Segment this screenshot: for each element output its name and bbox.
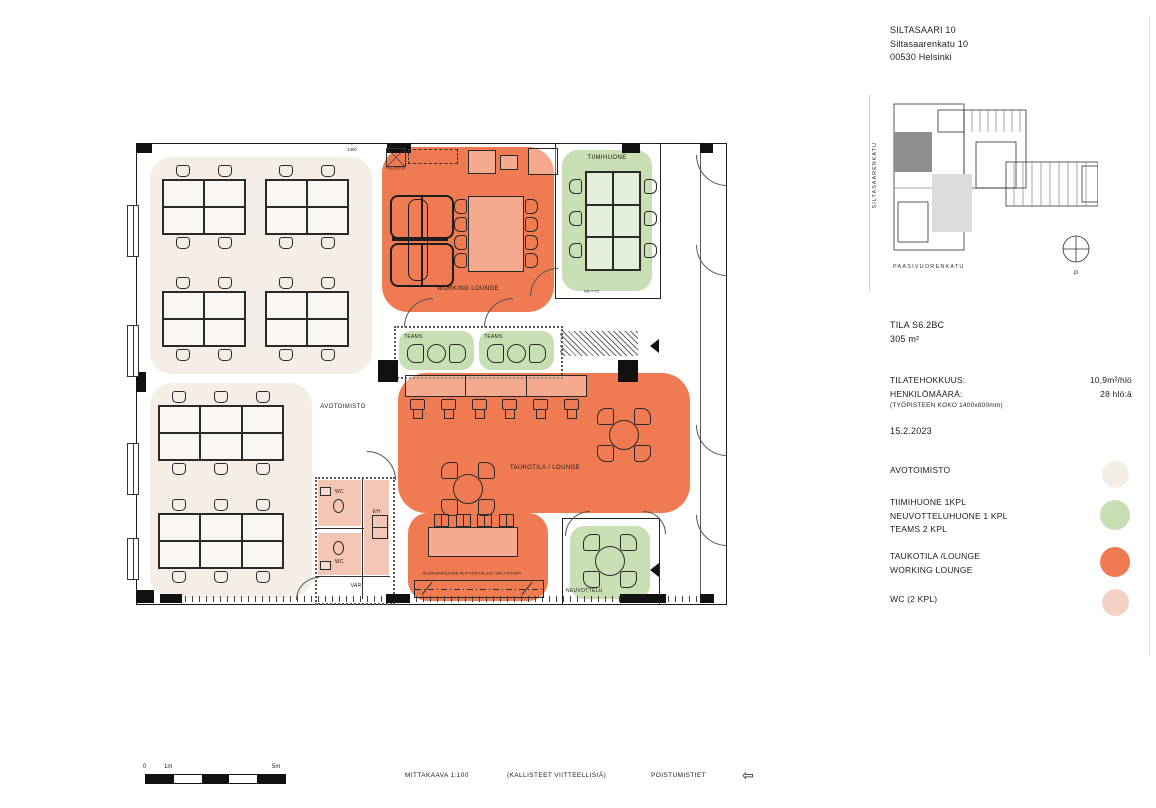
column (620, 594, 666, 603)
side-table (500, 155, 518, 170)
eh-label: EH (364, 509, 389, 515)
legend-swatch-avotoimisto (1102, 461, 1129, 488)
legend-swatch-meeting (1100, 500, 1130, 530)
project-header: SILTASAARI 10 Siltasaarenkatu 10 00530 H… (890, 24, 968, 65)
stool (456, 514, 471, 527)
scale-bar (145, 774, 286, 784)
chair (597, 445, 614, 462)
chair-row (158, 499, 284, 511)
desk (163, 292, 204, 319)
high-table (428, 527, 518, 557)
neuvottelu-label: NEUVOTTELU (566, 588, 603, 594)
desk (307, 180, 348, 207)
column (386, 594, 410, 603)
round-table-group (596, 407, 652, 463)
chair (279, 277, 293, 289)
naytto-label: NÄYTTÖ (584, 290, 599, 294)
slope-note: (KALLISTEET VIITTEELLISIÄ) (507, 772, 606, 779)
tiimihuone-label: TIIMIHUONE (562, 155, 652, 161)
chair (172, 391, 186, 403)
chair (172, 571, 186, 583)
street-label-siltasaarenkatu: SILTASAARENKATU (872, 142, 878, 208)
chair (529, 344, 546, 363)
desk (159, 433, 200, 460)
legend-label: NEUVOTTELUHUONE 1 KPL (890, 510, 1008, 524)
site-highlighted-space (894, 132, 932, 172)
column (136, 590, 154, 603)
desk (163, 319, 204, 346)
floor-plan-sheet: SILTASAARI 10 Siltasaarenkatu 10 00530 H… (0, 0, 1156, 808)
scale-tick-5m: 5m (272, 764, 280, 770)
desk (307, 292, 348, 319)
desk (204, 180, 245, 207)
city: 00530 Helsinki (890, 51, 968, 65)
chair (172, 499, 186, 511)
printer-table (408, 149, 458, 164)
chair-row (158, 571, 284, 583)
level-mark: ↑ 1300 (342, 144, 362, 153)
chair (256, 499, 270, 511)
legend-label: TAUKOTILA /LOUNGE (890, 550, 980, 564)
armchair (468, 150, 496, 174)
desk-cluster (162, 277, 246, 361)
floor-plan: TULOSTIN (136, 143, 727, 605)
window (127, 443, 139, 495)
scale-tick-1m: 1m (164, 764, 172, 770)
chair (256, 571, 270, 583)
avotoimisto-label: AVOTOIMISTO (308, 404, 378, 410)
legend-item-wc: WC (2 KPL) (890, 593, 937, 607)
armchair (528, 148, 558, 175)
chair (441, 462, 458, 479)
chair (454, 217, 467, 232)
legend-item-meeting: TIIMIHUONE 1KPL NEUVOTTELUHUONE 1 KPL TE… (890, 496, 1008, 537)
desk (266, 319, 307, 346)
north-label: P (1074, 270, 1078, 277)
page-edge-line (1149, 16, 1150, 656)
space-area: 305 m² (890, 332, 944, 346)
chair (176, 277, 190, 289)
legend-swatch-lounge (1100, 547, 1130, 577)
stool (499, 514, 514, 527)
chair (569, 243, 582, 258)
site-plan: SILTASAARENKATU PAASIVUORENKATU P (886, 102, 1098, 270)
column (136, 143, 152, 153)
chair (214, 499, 228, 511)
street-label-paasivuorenkatu: PAASIVUORENKATU (893, 264, 965, 270)
legend-item-avotoimisto: AVOTOIMISTO (890, 464, 950, 478)
tulostin-label: TULOSTIN (386, 167, 405, 171)
chair (321, 349, 335, 361)
chair (525, 217, 538, 232)
teams-label-1: TEAMS (404, 334, 423, 340)
headcount-value: 28 hlö:ä (1100, 388, 1132, 402)
column (378, 360, 398, 382)
chair-row (265, 349, 349, 361)
column (160, 594, 182, 603)
desk-cluster (158, 499, 284, 583)
chair (176, 237, 190, 249)
desk (163, 207, 204, 234)
legend-label: WC (2 KPL) (890, 593, 937, 607)
counter-stools (410, 399, 580, 421)
efficiency-value: 10,9m²/hlö (1090, 374, 1132, 388)
workstation-note: (TYÖPISTEEN KOKO 1400x800mm) (890, 402, 1003, 409)
stool (502, 399, 518, 421)
working-lounge-label: WORKING LOUNGE (382, 286, 554, 292)
street-address: Siltasaarenkatu 10 (890, 38, 968, 52)
stool (472, 399, 488, 421)
desk (266, 292, 307, 319)
chair (176, 349, 190, 361)
chair (644, 179, 657, 194)
desk-grid (162, 291, 246, 347)
legend-label: TEAMS 2 KPL (890, 523, 1008, 537)
desk (200, 541, 241, 568)
chair (279, 237, 293, 249)
stool (410, 399, 426, 421)
desk (163, 180, 204, 207)
chair (620, 571, 637, 588)
table (613, 172, 640, 205)
scale-tick-0: 0 (143, 764, 146, 770)
cabinet (372, 515, 388, 539)
chair-row (158, 391, 284, 403)
chair (321, 237, 335, 249)
taukotila-label: TAUKOTILA / LOUNGE (485, 465, 605, 471)
kitchen-note: OLEMASSAOLEVAN KEITTIÖN KALUST. SÄILYTET… (414, 572, 529, 576)
chair-row (158, 463, 284, 475)
stool (564, 399, 580, 421)
desk (204, 292, 245, 319)
chair (214, 391, 228, 403)
legend-label: TIIMIHUONE 1KPL (890, 496, 1008, 510)
desk (307, 319, 348, 346)
space-info: TILA S6.2BC 305 m² (890, 318, 944, 346)
desk (204, 207, 245, 234)
chair (620, 534, 637, 551)
desk (266, 180, 307, 207)
chair (454, 235, 467, 250)
window (127, 325, 139, 377)
desk (307, 207, 348, 234)
desk-grid (158, 513, 284, 569)
legend-item-lounge: TAUKOTILA /LOUNGE WORKING LOUNGE (890, 550, 980, 577)
chair (487, 344, 504, 363)
desk (159, 406, 200, 433)
desk-grid (162, 179, 246, 235)
var-label: VAR (326, 583, 386, 589)
exit-marker-icon (650, 563, 659, 577)
chair-row (265, 277, 349, 289)
desk-cluster (265, 277, 349, 361)
chair (214, 571, 228, 583)
toilet (333, 541, 344, 555)
eh-divider (362, 479, 363, 599)
chair (218, 165, 232, 177)
stool (441, 399, 457, 421)
legend-label: AVOTOIMISTO (890, 464, 950, 478)
desk (159, 541, 200, 568)
chair (583, 534, 600, 551)
round-table (507, 344, 526, 363)
desk (242, 406, 283, 433)
column (622, 143, 640, 153)
building-name: SILTASAARI 10 (890, 24, 968, 38)
desk (242, 541, 283, 568)
kitchen-counter (414, 580, 544, 598)
chair (321, 277, 335, 289)
exit-arrow-icon: ⇦ (742, 768, 754, 782)
exit-marker-icon (650, 339, 659, 353)
wc-divider (317, 528, 364, 529)
column (700, 594, 714, 603)
exits-label: POISTUMISTIET (651, 772, 706, 779)
window (127, 538, 139, 580)
chair (218, 277, 232, 289)
chair (172, 463, 186, 475)
north-compass-icon (1063, 236, 1089, 262)
kitchen-stools (434, 514, 514, 527)
chair (454, 199, 467, 214)
sink-mark (521, 582, 532, 595)
table (613, 237, 640, 270)
desk (200, 514, 241, 541)
chair (321, 165, 335, 177)
chair (279, 349, 293, 361)
chair-row (162, 349, 246, 361)
desk-grid (265, 291, 349, 347)
chair (256, 391, 270, 403)
chair-row (265, 165, 349, 177)
window (127, 205, 139, 257)
desk-grid (265, 179, 349, 235)
table (613, 205, 640, 238)
desk (204, 319, 245, 346)
round-table-group (582, 533, 638, 589)
chair (525, 199, 538, 214)
legend-swatch-wc (1102, 589, 1129, 616)
wc-label-1: WC (318, 489, 361, 495)
table (586, 172, 613, 205)
chair (634, 445, 651, 462)
desk (242, 433, 283, 460)
desk-cluster (158, 391, 284, 475)
long-table (468, 196, 524, 272)
efficiency-label: TILATEHOKKUUS: (890, 374, 965, 388)
chair (256, 463, 270, 475)
desk (242, 514, 283, 541)
efficiency-row: TILATEHOKKUUS: 10,9m²/hlö (890, 374, 1132, 388)
chair (214, 463, 228, 475)
chair-row (162, 277, 246, 289)
chair (597, 408, 614, 425)
stool (477, 514, 492, 527)
level-value: 1300 (347, 147, 356, 152)
counter-table (405, 375, 587, 397)
var-divider (317, 576, 390, 577)
desk (200, 433, 241, 460)
desk (200, 406, 241, 433)
chair (218, 237, 232, 249)
table (586, 237, 613, 270)
sofa (390, 243, 454, 287)
scale-label: MITTAKAAVA 1:100 (405, 772, 469, 779)
sofa-divider (392, 237, 448, 241)
chair-row (162, 165, 246, 177)
hatched-area (560, 331, 638, 356)
headcount-row: HENKILÖMÄÄRÄ: 28 hlö:ä (890, 388, 1132, 402)
chair-row (265, 237, 349, 249)
chair (525, 253, 538, 268)
chair (279, 165, 293, 177)
sofa (390, 195, 454, 239)
chair (454, 253, 467, 268)
legend-label: WORKING LOUNGE (890, 564, 980, 578)
chair (634, 408, 651, 425)
desk (159, 514, 200, 541)
chair (525, 235, 538, 250)
chair (218, 349, 232, 361)
round-table (427, 344, 446, 363)
site-plan-drawing (886, 102, 1098, 270)
wc-label-2: WC (318, 559, 361, 565)
chair (644, 211, 657, 226)
chair-row (162, 237, 246, 249)
teams-label-2: TEAMS (484, 334, 503, 340)
chair (176, 165, 190, 177)
chair (569, 211, 582, 226)
column (618, 360, 638, 382)
headcount-label: HENKILÖMÄÄRÄ: (890, 388, 963, 402)
sink-mark (421, 582, 432, 595)
plan-date: 15.2.2023 (890, 424, 932, 438)
toilet (333, 499, 344, 513)
desk-grid (158, 405, 284, 461)
window-band-line (700, 143, 701, 603)
stool (533, 399, 549, 421)
chair (407, 344, 424, 363)
chair (569, 179, 582, 194)
stool (434, 514, 449, 527)
table (586, 205, 613, 238)
panel-divider (869, 95, 870, 290)
desk (266, 207, 307, 234)
meeting-tables (585, 171, 641, 271)
desk-cluster (162, 165, 246, 249)
chair (583, 571, 600, 588)
printer (386, 148, 406, 167)
desk-cluster (265, 165, 349, 249)
space-id: TILA S6.2BC (890, 318, 944, 332)
chair (644, 243, 657, 258)
column (700, 143, 713, 153)
chair (449, 344, 466, 363)
